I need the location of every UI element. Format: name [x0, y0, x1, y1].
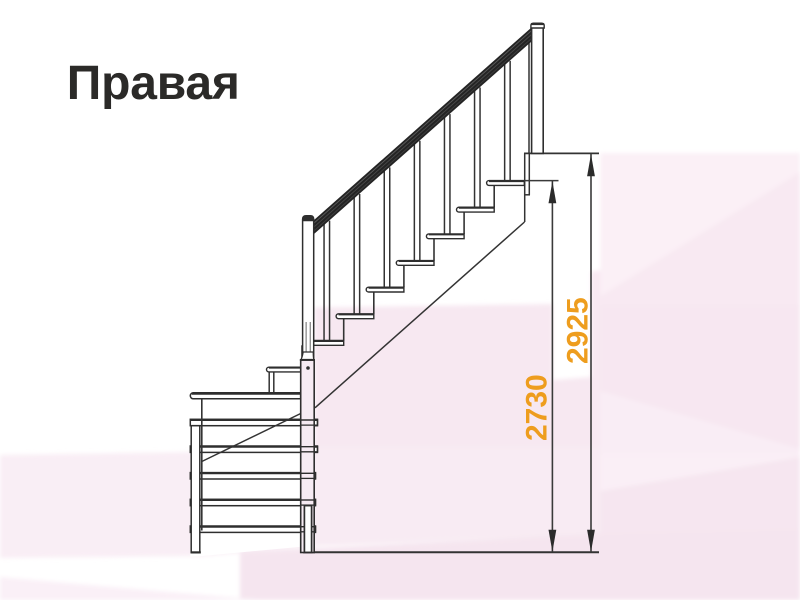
- svg-text:2730: 2730: [521, 374, 554, 441]
- svg-text:2925: 2925: [562, 297, 595, 364]
- svg-text:Правая: Правая: [67, 57, 240, 110]
